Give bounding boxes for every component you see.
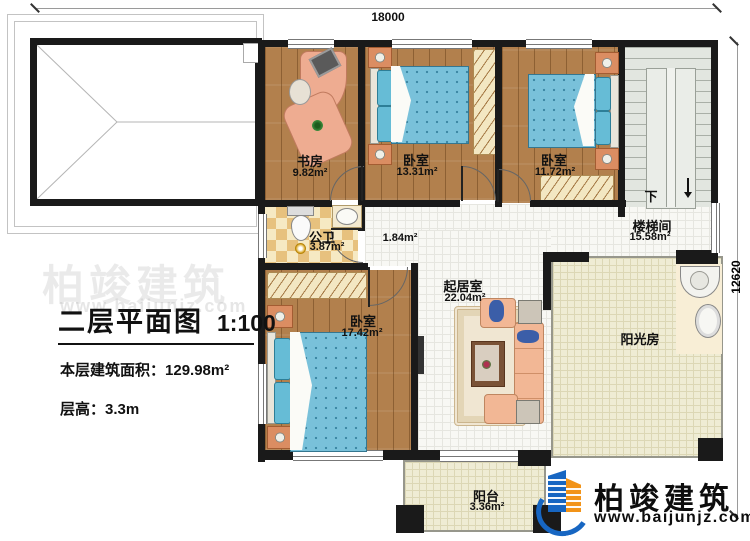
person-figure: [517, 330, 539, 343]
wall-bedrooms-bottom-d: [530, 200, 626, 207]
bed-headboard: [610, 75, 619, 148]
dimension-top-value: 18000: [371, 10, 404, 24]
bedroom2-window: [526, 39, 592, 49]
title-underline: [58, 343, 254, 345]
wall-living-bottom-right: [518, 450, 551, 466]
desk-chair: [289, 79, 311, 105]
study-window: [288, 39, 334, 49]
logo-url-text: www.baijunjz.com: [594, 509, 750, 527]
pillow: [274, 338, 291, 380]
person-figure: [489, 300, 504, 322]
bedroom3-wardrobe: [267, 272, 367, 299]
logo: 柏竣建筑 www.baijunjz.com: [536, 466, 736, 532]
pillow: [595, 77, 611, 111]
nightstand: [368, 47, 392, 68]
plan-scale: 1:100: [217, 310, 276, 337]
shower-drain-icon: [690, 271, 709, 290]
study-door-leaf: [361, 166, 363, 201]
bath-door-leaf: [331, 228, 362, 230]
plan-title: 二层平面图: [58, 300, 203, 339]
bath-window: [258, 214, 267, 258]
balcony-sliding-door: [440, 450, 518, 462]
stair-down-arrow-icon: [687, 178, 689, 193]
balcony-area: 3.36m²: [470, 501, 505, 513]
pillow: [595, 111, 611, 145]
tv-panel: [418, 336, 424, 374]
stair-area: 15.58m²: [630, 231, 671, 243]
bedroom2-door-leaf: [497, 169, 499, 202]
stair-down-arrowhead-icon: [684, 192, 692, 198]
bedroom1-window: [392, 39, 472, 49]
nightstand: [368, 144, 392, 165]
side-table: [518, 300, 542, 324]
roof-ridge-lines: [37, 45, 255, 199]
study-area: 9.82m²: [293, 167, 328, 179]
sink-sunroom: [695, 304, 721, 338]
bedroom2-wardrobe: [540, 175, 614, 201]
bedroom1-area: 13.31m²: [397, 166, 438, 178]
logo-building-orange-icon: [566, 478, 581, 512]
sunroom-label: 阳光房: [620, 329, 659, 348]
flower-vase-icon: [482, 360, 491, 369]
floor-height-label: 层高：: [60, 401, 105, 418]
armchair: [484, 394, 518, 424]
bedroom3-door-leaf: [368, 267, 370, 307]
wall-sunroom-topleft-v: [543, 252, 551, 310]
flower-icon: [295, 243, 306, 254]
wall-bedroom3-living: [411, 263, 418, 457]
pillow: [274, 382, 291, 424]
wall-bath-bottom: [258, 263, 368, 270]
bedroom1-wardrobe: [473, 49, 496, 155]
bath-area: 3.87m²: [310, 241, 345, 253]
floor-height-value: 3.3m: [105, 401, 139, 418]
side-table: [516, 400, 540, 424]
dimension-line-top: [35, 8, 718, 9]
wall-right-top: [711, 40, 718, 210]
bedroom2-area: 11.72m²: [535, 166, 575, 178]
stair-stringer: [666, 68, 676, 207]
hall-area: 1.84m²: [383, 232, 418, 244]
nightstand: [595, 52, 619, 74]
living-area: 22.04m²: [445, 292, 486, 304]
sink-basin: [336, 208, 358, 225]
bedroom1-door-leaf: [461, 166, 463, 201]
dimension-right-value: 12620: [729, 247, 743, 307]
floor-area-label: 本层建筑面积：: [60, 362, 165, 379]
wall-bedrooms-bottom-b: [363, 200, 460, 207]
floor-plan: 柏竣建筑 www.baijunjz.com 柏竣建筑 www.baijunjz.…: [0, 0, 750, 541]
floor-area-value: 129.98m²: [165, 362, 229, 379]
balcony-pillar: [396, 505, 424, 533]
bedroom3-area: 17.42m²: [342, 327, 383, 339]
stair-down-label: 下: [644, 186, 657, 205]
sunroom-pillar: [698, 438, 723, 461]
logo-building-blue-icon: [548, 470, 566, 512]
stair-landing-window: [711, 203, 720, 253]
dimension-tick: [729, 36, 739, 46]
plant-icon: [312, 120, 323, 131]
wall-stair-left: [618, 40, 625, 217]
title-block: 二层平面图 1:100 本层建筑面积：129.98m² 层高：3.3m: [58, 300, 276, 419]
nightstand: [595, 148, 619, 170]
